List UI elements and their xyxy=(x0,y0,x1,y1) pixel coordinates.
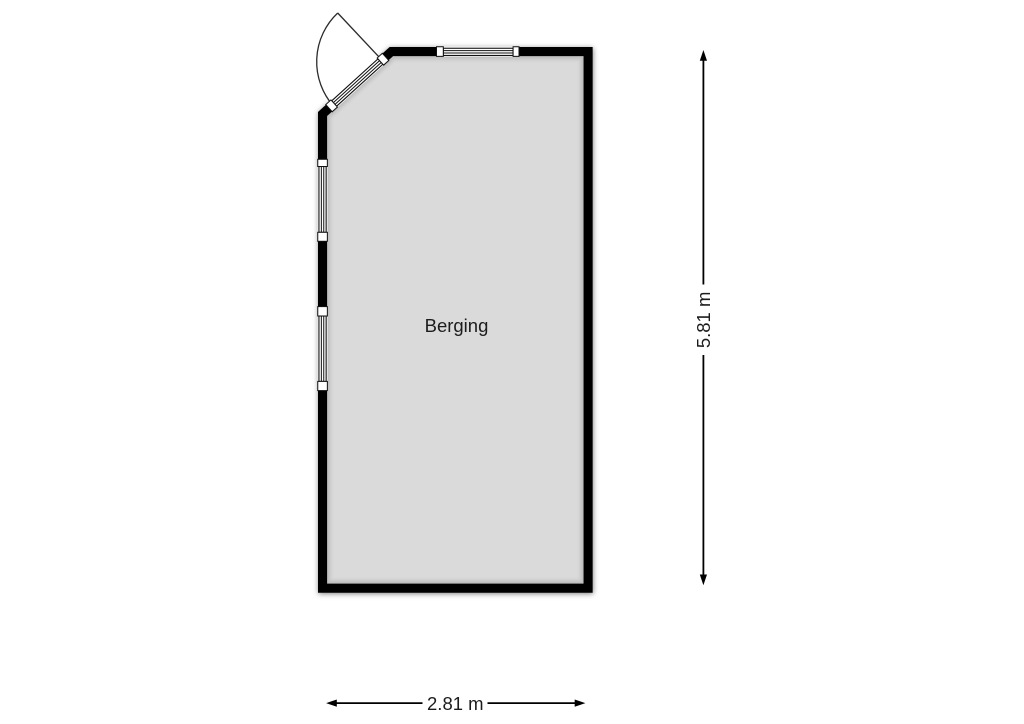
svg-text:5.81 m: 5.81 m xyxy=(693,292,714,349)
svg-text:Berging: Berging xyxy=(425,315,489,336)
svg-text:2.81 m: 2.81 m xyxy=(427,693,484,714)
